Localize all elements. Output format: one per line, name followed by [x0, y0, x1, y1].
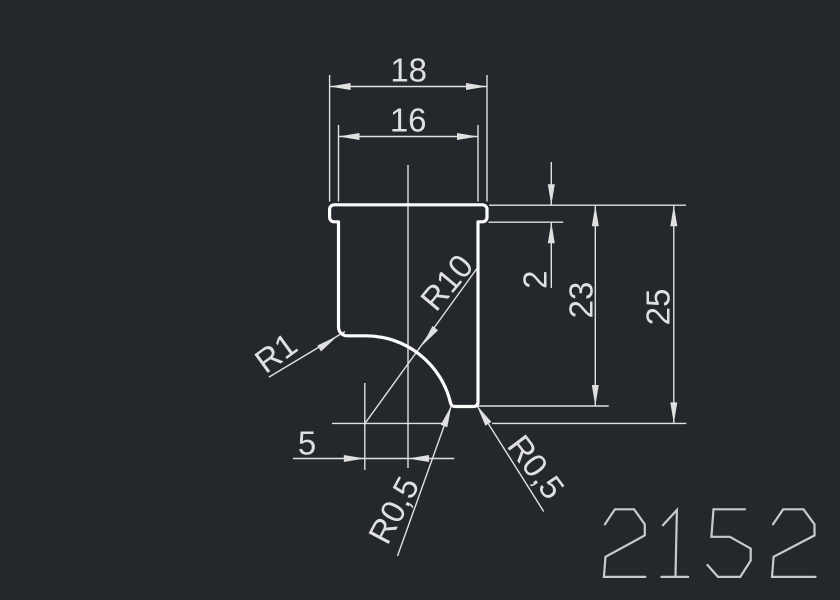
svg-text:R0,5: R0,5 [361, 471, 426, 550]
svg-text:R1: R1 [248, 325, 304, 380]
svg-text:2: 2 [516, 271, 553, 289]
svg-text:18: 18 [390, 52, 427, 89]
svg-text:R0,5: R0,5 [500, 428, 572, 506]
svg-text:R10: R10 [413, 247, 480, 317]
svg-text:25: 25 [640, 289, 677, 326]
svg-text:16: 16 [390, 101, 427, 138]
svg-text:5: 5 [298, 425, 316, 462]
svg-text:23: 23 [562, 282, 599, 319]
